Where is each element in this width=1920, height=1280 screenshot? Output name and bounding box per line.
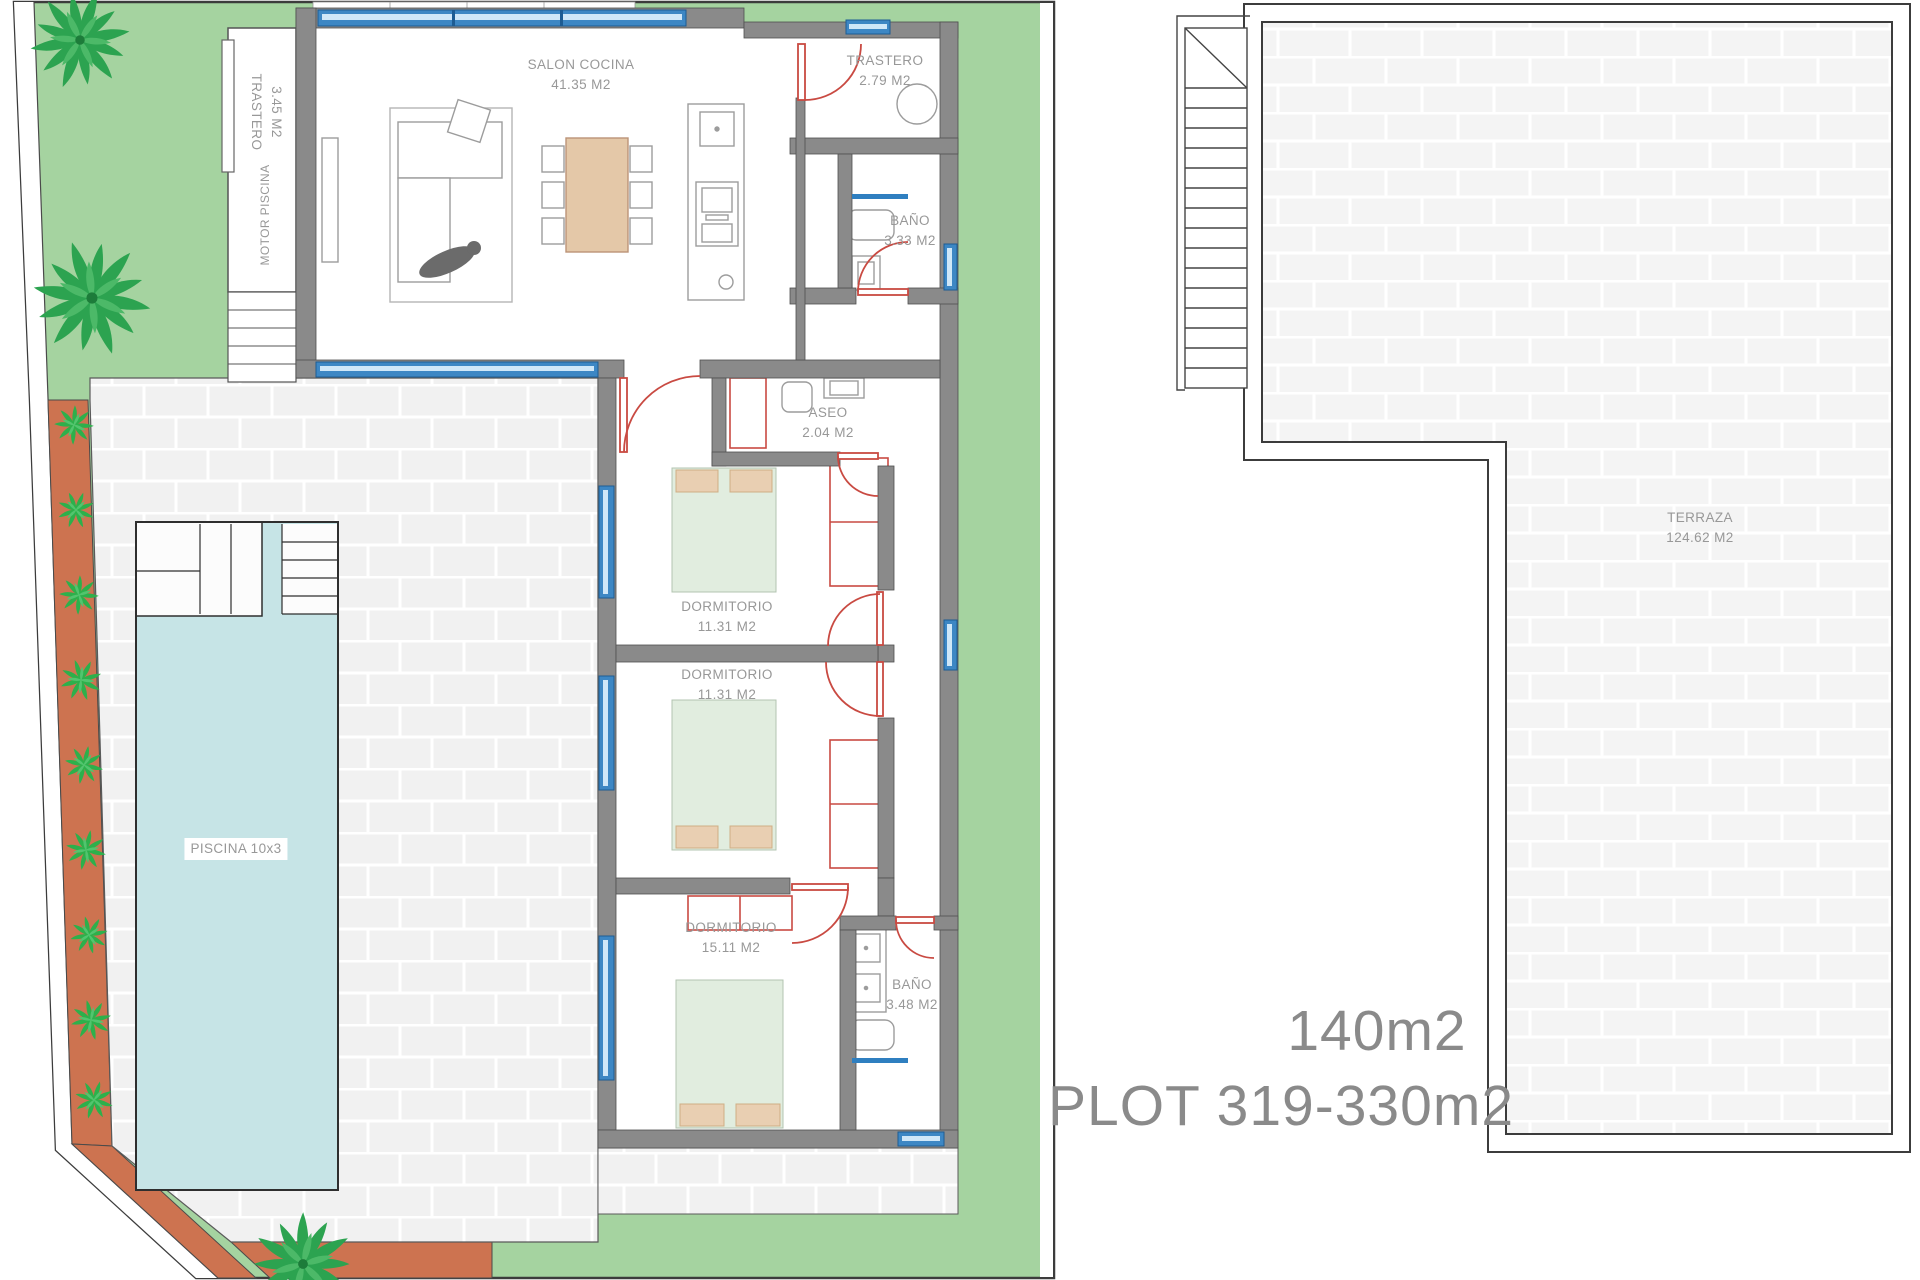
window-salon-top bbox=[318, 10, 686, 26]
window-hall-east bbox=[944, 620, 957, 670]
tv-unit bbox=[322, 138, 338, 262]
aseo-toilet bbox=[782, 382, 812, 412]
window-dorm1 bbox=[599, 486, 614, 598]
exterior-steps bbox=[228, 292, 296, 382]
trastero-top-basin bbox=[897, 84, 937, 124]
toilet-bottom bbox=[850, 1020, 894, 1050]
window-salon-patio bbox=[316, 362, 598, 377]
stairs-icon bbox=[1177, 16, 1250, 390]
window-trastero-left bbox=[222, 40, 234, 172]
dining-table bbox=[566, 138, 628, 252]
window-trastero-top bbox=[846, 20, 890, 34]
window-bano-top bbox=[944, 244, 957, 290]
window-dorm2 bbox=[599, 676, 614, 790]
floor-plan-drawing bbox=[0, 0, 1920, 1280]
towel-rail-bottom bbox=[852, 1058, 908, 1063]
right-plot bbox=[1177, 4, 1910, 1152]
floor-plan: SALON COCINA 41.35 M2 3.45 M2 TRASTERO M… bbox=[0, 0, 1920, 1280]
right-edge-path bbox=[1040, 3, 1053, 1277]
bed-dorm3 bbox=[676, 980, 783, 1128]
patio-tiles-south bbox=[598, 1148, 958, 1214]
bathtub-top bbox=[848, 210, 894, 240]
window-dorm3 bbox=[599, 936, 614, 1080]
terrace-surface bbox=[1262, 22, 1892, 1134]
beds bbox=[672, 468, 783, 1128]
bed-dorm2 bbox=[672, 700, 776, 850]
pool-steps bbox=[282, 524, 337, 614]
bed-dorm1 bbox=[672, 468, 776, 592]
window-bano-bottom bbox=[898, 1132, 944, 1146]
pool-water bbox=[136, 522, 338, 1190]
towel-rail-top bbox=[852, 194, 908, 199]
pool bbox=[136, 522, 338, 1190]
room-trastero-left bbox=[228, 28, 296, 292]
aseo-shower bbox=[730, 378, 766, 448]
pool-platform bbox=[136, 522, 262, 616]
left-plot bbox=[14, 0, 1054, 1280]
